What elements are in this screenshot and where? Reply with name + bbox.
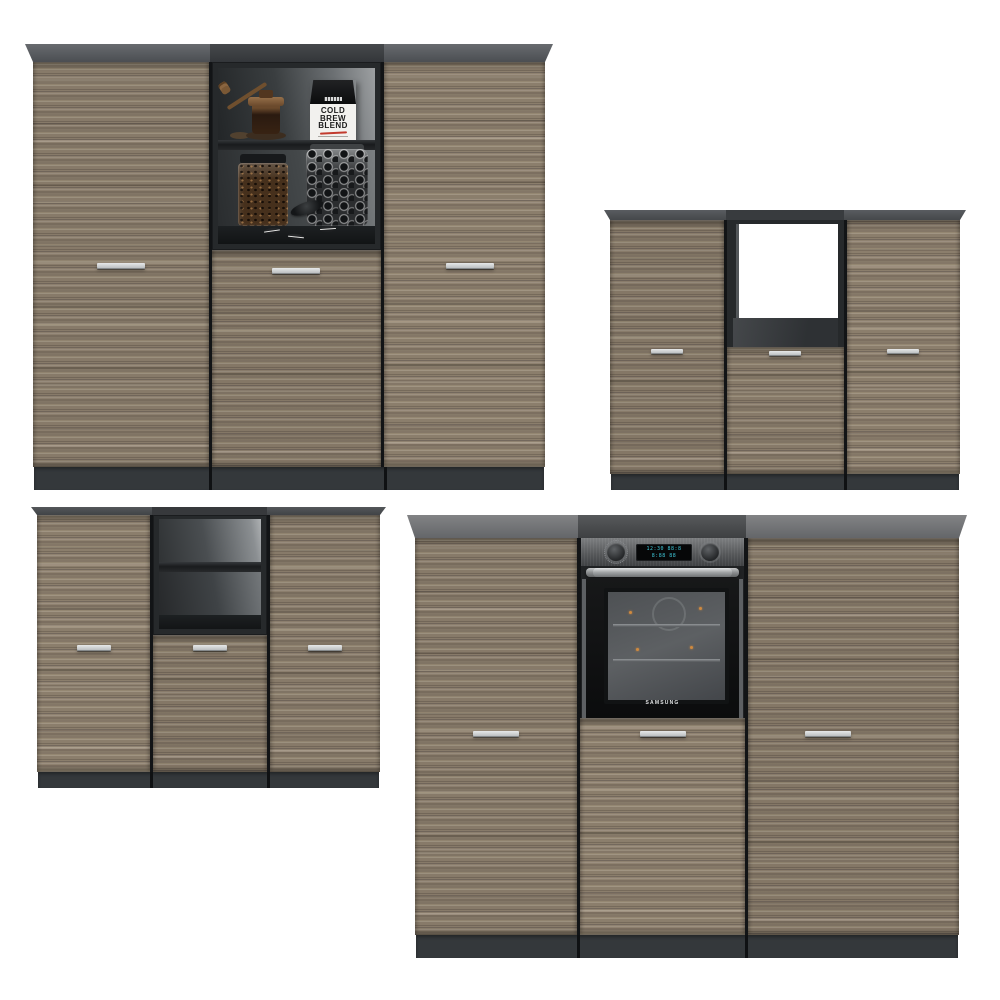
- right-door: [847, 220, 960, 474]
- right-door: [748, 538, 959, 935]
- oven-display: 12:30 88:8 8:88 88: [636, 544, 692, 561]
- niche-floor: [159, 615, 261, 629]
- oven-light: [699, 607, 702, 610]
- samsung-logo: SAMSUNG: [582, 700, 743, 706]
- bag-line-3: BLEND: [318, 121, 348, 130]
- plinth-gap: [724, 474, 727, 490]
- coffee-grinder-knob: [259, 90, 273, 98]
- cookie-jar: [306, 149, 368, 226]
- product-collage: COLD BREW BLEND: [0, 0, 1000, 1000]
- left-door: [610, 220, 724, 474]
- cabinet-body: COLD BREW BLEND: [33, 62, 545, 467]
- oven-knob-left: [607, 543, 625, 561]
- plinth-gap: [577, 935, 580, 958]
- oven-knob-right: [701, 543, 719, 561]
- cabinet-top-surface: [604, 210, 966, 220]
- door-handle: [473, 731, 519, 737]
- plinth-gap: [384, 467, 387, 490]
- plinth-gap: [844, 474, 847, 490]
- plinth: [611, 474, 959, 490]
- cabinet-body: [37, 515, 380, 772]
- plinth-gap: [267, 772, 270, 788]
- door-handle: [272, 268, 320, 274]
- cabinet-top-right: [604, 210, 966, 490]
- oven-door-handle: [586, 568, 739, 577]
- cabinet-top-left: COLD BREW BLEND: [25, 44, 553, 490]
- coffee-bag: COLD BREW BLEND: [310, 80, 356, 146]
- plinth-gap: [745, 935, 748, 958]
- cabinet-bottom-right: 12:30 88:8 8:88 88: [407, 515, 967, 958]
- oven-display-row2: 8:88 88: [652, 553, 677, 559]
- door-handle: [887, 349, 919, 354]
- cabinet-body: 12:30 88:8 8:88 88: [415, 538, 959, 935]
- plinth-gap: [209, 467, 212, 490]
- shelf-board: [159, 562, 261, 572]
- oven-control-panel: 12:30 88:8 8:88 88: [581, 538, 744, 566]
- cabinet-top-surface-middle: [152, 507, 267, 515]
- oven-light: [629, 611, 632, 614]
- coffee-grinder-rim: [248, 97, 284, 106]
- oven-rack: [613, 624, 721, 627]
- door-handle: [640, 731, 686, 737]
- door-handle: [651, 349, 683, 354]
- plinth: [38, 772, 379, 788]
- niche-upper-compartment: COLD BREW BLEND: [218, 68, 375, 140]
- coffee-bag-logo: [324, 97, 342, 101]
- open-shelf-niche: [153, 515, 267, 635]
- middle-door: [580, 718, 745, 935]
- niche-upper-compartment: [159, 519, 261, 562]
- oven-display-row1: 12:30 88:8: [646, 546, 681, 552]
- open-shelf-niche: COLD BREW BLEND: [212, 62, 381, 250]
- plinth-gap: [150, 772, 153, 788]
- cabinet-top-surface: [25, 44, 553, 62]
- coffee-grinder: [252, 102, 280, 134]
- middle-door: [727, 347, 844, 474]
- middle-door: [153, 635, 267, 772]
- bag-fine-print: [318, 136, 348, 137]
- cabinet-top-surface-middle: [578, 515, 746, 538]
- cabinet-body: [610, 220, 960, 474]
- door-handle: [97, 263, 145, 269]
- door-handle: [77, 645, 111, 651]
- niche-interior: [159, 519, 261, 629]
- cabinet-top-surface-middle: [726, 210, 844, 220]
- oven-light: [690, 646, 693, 649]
- door-handle: [446, 263, 494, 269]
- oven-light: [636, 648, 639, 651]
- appliance-cutout-opening: [736, 224, 838, 318]
- plinth: [34, 467, 544, 490]
- honey-dipper-head: [218, 81, 232, 96]
- oven-door: SAMSUNG: [582, 579, 743, 718]
- door-handle: [193, 645, 227, 651]
- oven-rack: [613, 659, 721, 662]
- appliance-cutout: [727, 220, 844, 347]
- cabinet-top-surface-middle: [210, 44, 384, 62]
- left-door: [37, 515, 150, 772]
- door-handle: [805, 731, 851, 737]
- niche-interior: COLD BREW BLEND: [218, 68, 375, 244]
- bag-red-script: [320, 131, 347, 134]
- door-handle: [308, 645, 342, 651]
- cabinet-top-surface: [407, 515, 967, 538]
- middle-door: [212, 250, 381, 467]
- door-handle: [769, 351, 801, 356]
- built-in-oven: 12:30 88:8 8:88 88: [581, 538, 744, 718]
- cabinet-top-surface: [31, 507, 386, 515]
- oven-window: [604, 588, 729, 704]
- niche-lower-compartment: [159, 572, 261, 615]
- appliance-cutout-floor: [733, 318, 838, 347]
- plinth: [416, 935, 958, 958]
- cabinet-bottom-left: [31, 507, 386, 788]
- bean-jar: [238, 163, 288, 226]
- right-door: [270, 515, 380, 772]
